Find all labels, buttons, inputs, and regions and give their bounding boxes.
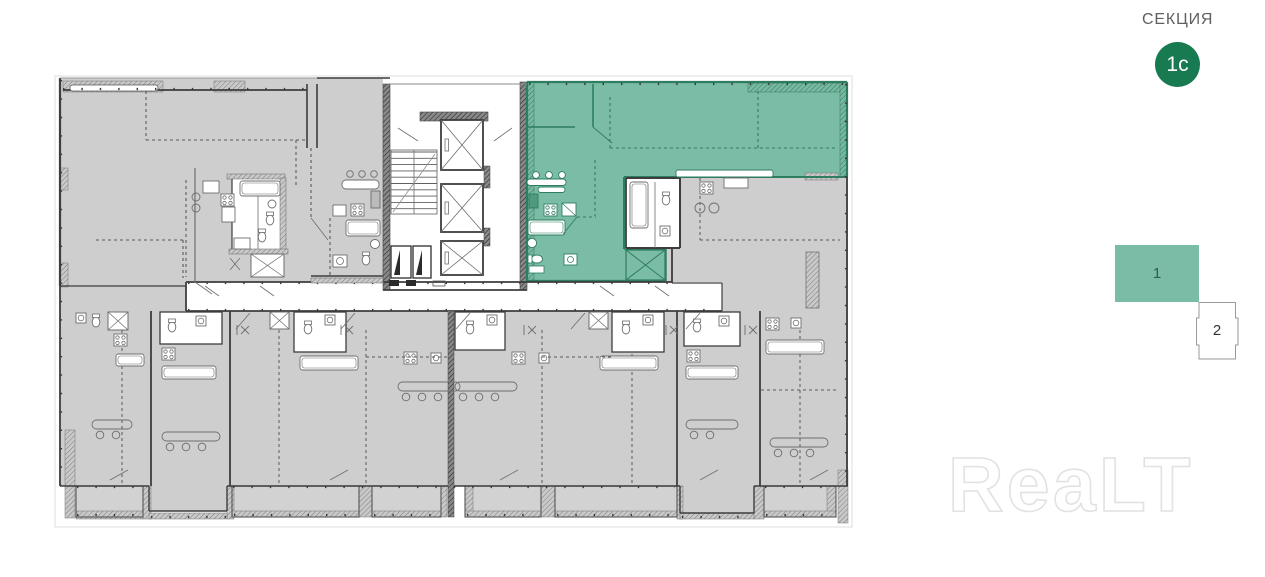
- svg-text:2: 2: [1213, 322, 1221, 339]
- svg-text:ReaLT: ReaLT: [948, 442, 1194, 528]
